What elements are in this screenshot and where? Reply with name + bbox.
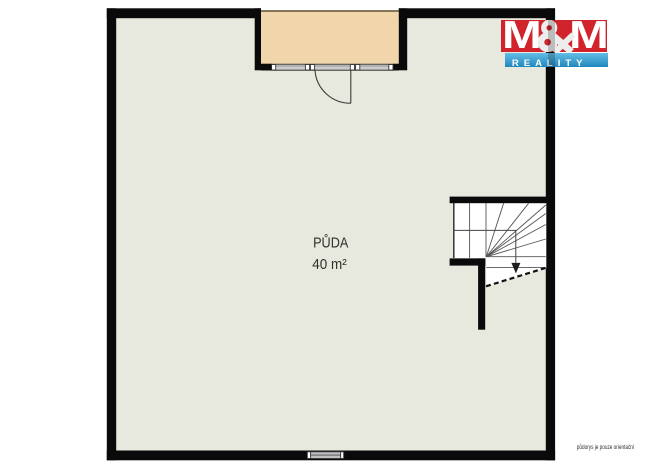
svg-text:půdorys je pouze orientační: půdorys je pouze orientační xyxy=(577,444,635,451)
svg-text:PŮDA: PŮDA xyxy=(313,233,349,251)
svg-text:40 m²: 40 m² xyxy=(312,257,346,273)
